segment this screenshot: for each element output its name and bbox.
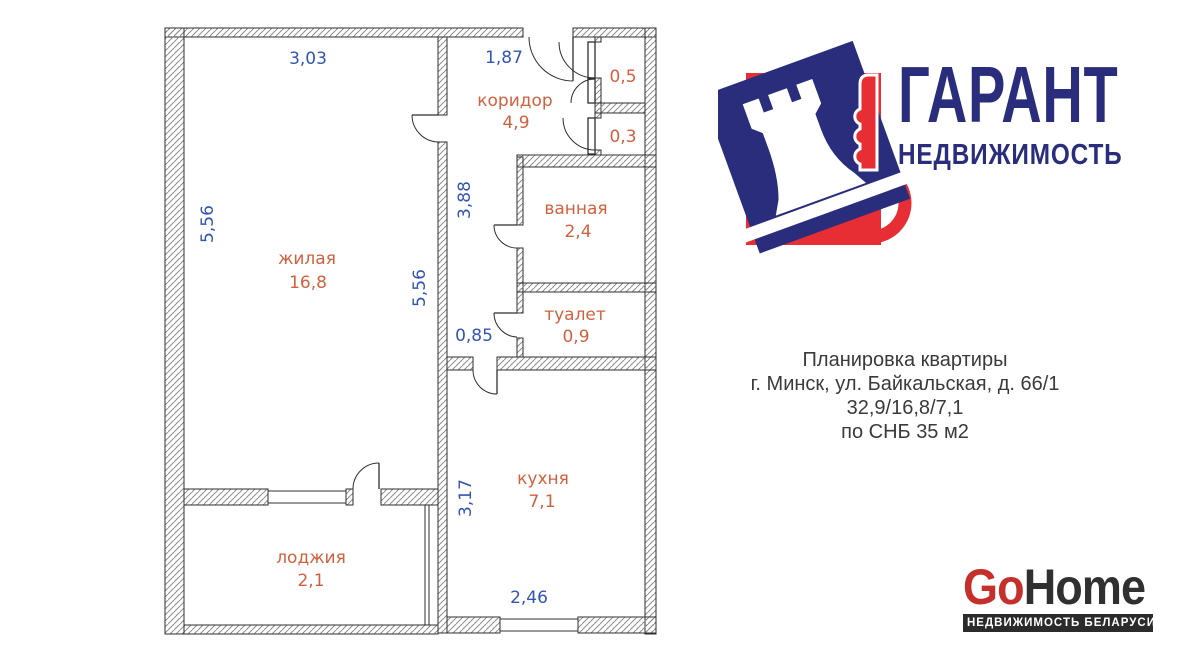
room-area-kitchen: 7,1	[528, 492, 555, 512]
dim-kitchen-left: 3,17	[456, 479, 476, 517]
wall-living-corridor-upper	[438, 37, 447, 115]
wall-bath-wc-divider	[517, 283, 656, 292]
doors	[353, 37, 595, 489]
wall-kitchen-bottom-right	[578, 617, 656, 633]
entrance-door-arc	[529, 37, 573, 81]
room-label-corridor: коридор	[477, 91, 552, 111]
wall-loggia-right-thin	[425, 505, 429, 625]
wall-closet-stub-bottom	[595, 150, 601, 155]
kitchen-door-arc	[473, 370, 497, 394]
dim-corridor-top: 1,87	[485, 48, 523, 68]
dimension-labels: 3,03 1,87 5,56 5,56 3,88 0,85 3,17 2,46	[198, 48, 548, 608]
dim-living-top: 3,03	[289, 49, 327, 69]
room-label-wc: туалет	[544, 305, 606, 325]
wall-closet-stub-top	[595, 37, 601, 42]
room-area-wc: 0,9	[562, 327, 589, 347]
wall-top-right	[573, 28, 656, 37]
wall-living-loggia-pier	[346, 489, 353, 505]
wall-kitchen-bottom-left	[447, 617, 500, 633]
dim-corridor-height: 3,88	[455, 181, 475, 219]
dim-living-right: 5,56	[410, 269, 430, 307]
wall-wc-left-lower	[517, 338, 523, 357]
garant-logo-mark	[718, 38, 913, 273]
garant-logo-text: ГАРАНТ НЕДВИЖИМОСТЬ	[898, 56, 1200, 170]
listing-snb: по СНБ 35 м2	[700, 420, 1110, 444]
wall-loggia-bottom	[184, 625, 438, 634]
closet-top-door-leaf2	[588, 79, 595, 103]
room-label-bath: ванная	[544, 199, 607, 219]
gohome-wordmark: GoHome	[963, 563, 1145, 611]
dim-corridor-bottom: 0,85	[455, 326, 493, 346]
wall-kitchen-top-right	[497, 357, 656, 370]
closet-bottom-door-leaf	[588, 118, 595, 154]
listing-address: г. Минск, ул. Байкальская, д. 66/1	[700, 372, 1110, 396]
gohome-go: Go	[963, 559, 1024, 615]
wall-living-corridor-lower	[438, 142, 447, 633]
living-door-arc	[412, 115, 439, 142]
wall-living-loggia-right	[381, 489, 438, 505]
dim-living-left: 5,56	[198, 205, 218, 243]
window-living-loggia	[268, 491, 346, 503]
bath-door-arc	[494, 225, 517, 248]
listing-areas: 32,9/16,8/7,1	[700, 396, 1110, 420]
room-area-closet-bottom: 0,3	[609, 127, 636, 147]
listing-title: Планировка квартиры	[700, 348, 1110, 372]
wall-right	[645, 28, 656, 634]
wall-bath-left-mid	[517, 248, 523, 313]
room-area-corridor: 4,9	[502, 113, 529, 133]
room-label-living: жилая	[278, 249, 336, 269]
wall-kitchen-top-left	[447, 357, 473, 370]
wc-door-arc	[494, 313, 517, 337]
garant-title: ГАРАНТ	[898, 56, 1118, 134]
room-label-loggia: лоджия	[276, 548, 346, 568]
dim-kitchen-bottom: 2,46	[510, 588, 548, 608]
wall-bath-left-upper	[517, 157, 523, 225]
floor-plan: жилая 16,8 коридор 4,9 ванная 2,4 туалет…	[0, 0, 700, 656]
gohome-home: Home	[1024, 559, 1145, 615]
garant-subtitle: НЕДВИЖИМОСТЬ	[898, 140, 1162, 170]
wall-closet-divider	[595, 103, 645, 113]
wall-living-loggia-left	[184, 489, 268, 505]
wall-bath-top	[517, 155, 656, 167]
room-area-bath: 2,4	[564, 222, 591, 242]
room-area-living: 16,8	[289, 273, 327, 293]
gohome-logo: GoHome НЕДВИЖИМОСТЬ БЕЛАРУСИ	[963, 563, 1165, 632]
room-area-closet-top: 0,5	[609, 67, 636, 87]
wall-left	[165, 28, 184, 634]
closet-top-door-leaf	[588, 42, 595, 78]
window-kitchen	[500, 619, 578, 631]
room-area-loggia: 2,1	[297, 571, 324, 591]
listing-info: Планировка квартиры г. Минск, ул. Байкал…	[700, 348, 1110, 444]
gohome-tagline: НЕДВИЖИМОСТЬ БЕЛАРУСИ	[963, 614, 1153, 632]
loggia-door-arc	[353, 463, 379, 489]
room-label-kitchen: кухня	[517, 469, 569, 489]
wall-top-left	[165, 28, 523, 37]
